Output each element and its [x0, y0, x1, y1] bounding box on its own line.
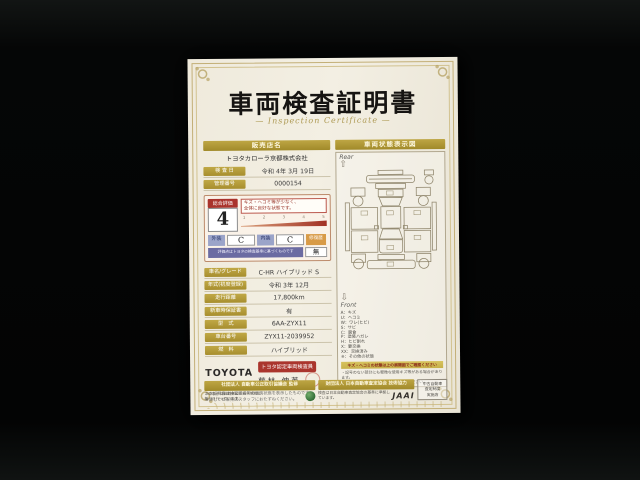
spec-label: 新車時保証書 [205, 306, 247, 315]
spec-value: 17,800km [247, 293, 332, 301]
spec-label: 燃 料 [205, 345, 247, 354]
jaai-block: 財団法人 日本自動車査定協会 技術協力 検査は日本自動車査定協会の基準に準拠して… [318, 379, 415, 401]
interior-grade: C [276, 234, 304, 245]
spec-row-type: 型 式 6AA-ZYX11 [205, 317, 332, 331]
appraisal-system-note-box: 中古自動車 査定制度 実施店 [418, 379, 448, 400]
left-column: 販売店名 トヨタカローラ京都株式会社 検 査 日 令和 4年 3月 19日 管理… [203, 140, 332, 402]
certificate-document: 車両検査証明書 — Inspection Certificate — 販売店名 … [187, 57, 460, 415]
evaluation-scale-ticks: 1 2 3 4 5 [241, 213, 327, 220]
spec-row-warranty: 新車時保証書 有 [205, 304, 332, 318]
spec-row-model: 車名/グレード C-HR ハイブリッド S [204, 265, 331, 279]
condition-diagram-header-bar: 車両状態表示図 [335, 139, 445, 150]
spec-value: ZYX11-2039952 [247, 332, 332, 340]
overall-evaluation-box: 総合評価 4 キズ・ヘコミ等が少なく、 全体に良好な状態です。 1 2 3 4 … [204, 194, 332, 262]
repair-history-label-chip: 修復歴 [306, 234, 326, 245]
bottom-scroll-ornament [204, 401, 446, 409]
scale-tick: 1 [243, 215, 246, 220]
car-unfolded-diagram-icon [339, 169, 442, 294]
meta-value: 0000154 [246, 179, 331, 187]
spec-label: 車台番号 [205, 332, 247, 341]
exterior-label-chip: 外装 [208, 235, 225, 246]
spec-label: 車名/グレード [204, 267, 246, 276]
spec-row-mileage: 走行距離 17,800km [204, 291, 331, 305]
jaai-bar: 財団法人 日本自動車査定協会 技術協力 [318, 379, 415, 390]
evaluation-scale-bar [241, 220, 327, 227]
repair-history-value: 無 [305, 247, 327, 257]
jaai-text: 検査は日本自動車査定協会の基準に準拠しています。 [318, 390, 390, 400]
meta-label: 検 査 日 [203, 166, 245, 175]
spec-row-fuel: 燃 料 ハイブリッド [205, 343, 332, 357]
meta-label: 管理番号 [204, 179, 246, 188]
exterior-grade: C [227, 235, 255, 246]
scale-tick: 5 [322, 214, 325, 219]
evaluation-score-block: 総合評価 4 [208, 199, 238, 232]
vehicle-condition-diagram: Rear ⇧ [335, 151, 447, 388]
photo-of-inspection-certificate: { "doc": { "title": "車両検査証明書", "subtitle… [0, 0, 640, 480]
scale-tick: 4 [302, 215, 305, 220]
evaluation-label: 総合評価 [208, 199, 238, 208]
appraisal-note-line: 実施店 [420, 393, 446, 398]
evaluation-score: 4 [208, 208, 238, 232]
fair-trade-line: 基づき行っています。 [204, 396, 303, 402]
fair-trade-text: この表示は自動車公正競争規約に 基づき行っています。 [204, 391, 303, 402]
spec-value: ハイブリッド [247, 344, 332, 354]
evaluation-note-line: 全体に良好な状態です。 [244, 206, 324, 212]
meta-row-inspection-date: 検 査 日 令和 4年 3月 19日 [203, 164, 330, 178]
fair-trade-council-bar: 社団法人 自動車公正取引協議会 監修 [204, 380, 315, 391]
page-subtitle: — Inspection Certificate — [188, 115, 458, 126]
meta-row-control-number: 管理番号 0000154 [203, 177, 330, 191]
spec-value: 有 [247, 305, 332, 315]
spec-row-chassis-number: 車台番号 ZYX11-2039952 [205, 330, 332, 344]
interior-label-chip: 内装 [257, 234, 274, 245]
toyota-logo: TOYOTA [205, 368, 253, 379]
spec-row-year: 年式(初度登録) 令和 3年 12月 [204, 278, 331, 292]
dealer-header-bar: 販売店名 [203, 140, 330, 151]
spec-value: 令和 3年 12月 [246, 279, 331, 289]
evaluation-note: キズ・ヘコミ等が少なく、 全体に良好な状態です。 [241, 198, 327, 214]
scale-tick: 2 [263, 215, 266, 220]
spec-label: 型 式 [205, 319, 247, 328]
legend-item: ※：その他の状態 [341, 354, 443, 360]
fair-trade-emblem-icon [305, 391, 315, 401]
diagram-note-bar: キズ・ヘコミの状態は上の展開図でご確認ください [341, 361, 443, 369]
fair-trade-council-block: 社団法人 自動車公正取引協議会 監修 この表示は自動車公正競争規約に 基づき行っ… [204, 380, 315, 402]
scale-tick: 3 [283, 215, 286, 220]
meta-value: 令和 4年 3月 19日 [245, 165, 330, 175]
spec-value: C-HR ハイブリッド S [246, 266, 331, 276]
front-label: Front [341, 302, 443, 309]
vehicle-spec-table: 車名/グレード C-HR ハイブリッド S 年式(初度登録) 令和 3年 12月… [204, 265, 332, 357]
evaluation-detail-block: キズ・ヘコミ等が少なく、 全体に良好な状態です。 1 2 3 4 5 [241, 198, 327, 232]
corner-ornament [194, 65, 212, 83]
condition-legend: A：キズ U：ヘコミ W：ワレ(ヒビ) S：サビ C：腐食 P：塗装ハガレ H：… [341, 310, 443, 360]
spec-value: 6AA-ZYX11 [247, 319, 332, 327]
footer: 社団法人 自動車公正取引協議会 監修 この表示は自動車公正競争規約に 基づき行っ… [204, 379, 447, 402]
evaluation-footnote-bar: 評価点はトヨタの検査基準に基づくものです [208, 247, 303, 258]
dealer-name: トヨタカローラ京都株式会社 [203, 153, 330, 163]
jaai-logo: JAAI [392, 391, 414, 400]
certified-inspector-badge: トヨタ認定車両検査員 [258, 361, 316, 373]
spec-label: 年式(初度登録) [204, 280, 246, 289]
corner-ornament [433, 63, 451, 81]
spec-label: 走行距離 [204, 293, 246, 302]
right-column: 車両状態表示図 Rear ⇧ [335, 139, 447, 388]
